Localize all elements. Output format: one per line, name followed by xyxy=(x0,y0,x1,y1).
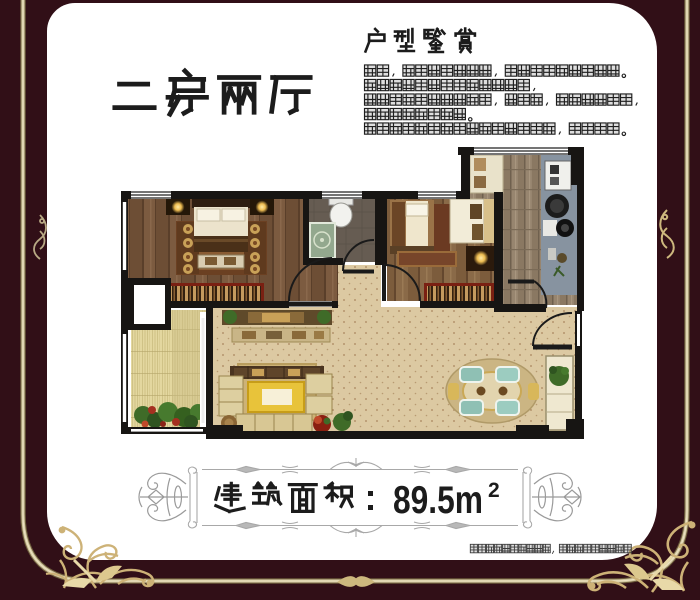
svg-text:89.5m: 89.5m xyxy=(393,479,483,522)
svg-text:2: 2 xyxy=(488,479,500,502)
